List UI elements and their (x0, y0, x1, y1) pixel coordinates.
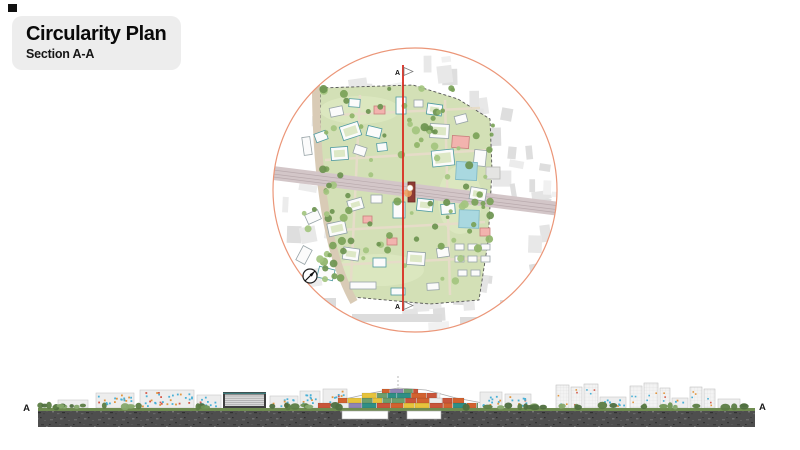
section-marker-arrow-top-icon (404, 68, 413, 76)
north-arrow-icon (303, 269, 317, 283)
drawing-canvas: A A A A (0, 0, 800, 450)
site-plan-map (273, 56, 573, 339)
section-label-right: A (759, 402, 766, 413)
section-label-left: A (23, 403, 30, 414)
section-marker-label-bottom: A (395, 304, 400, 311)
section-marker-label-top: A (395, 70, 400, 77)
ground-green-strip (38, 408, 755, 411)
ground-band (38, 411, 755, 427)
slide: Circularity Plan Section A-A (0, 0, 800, 450)
